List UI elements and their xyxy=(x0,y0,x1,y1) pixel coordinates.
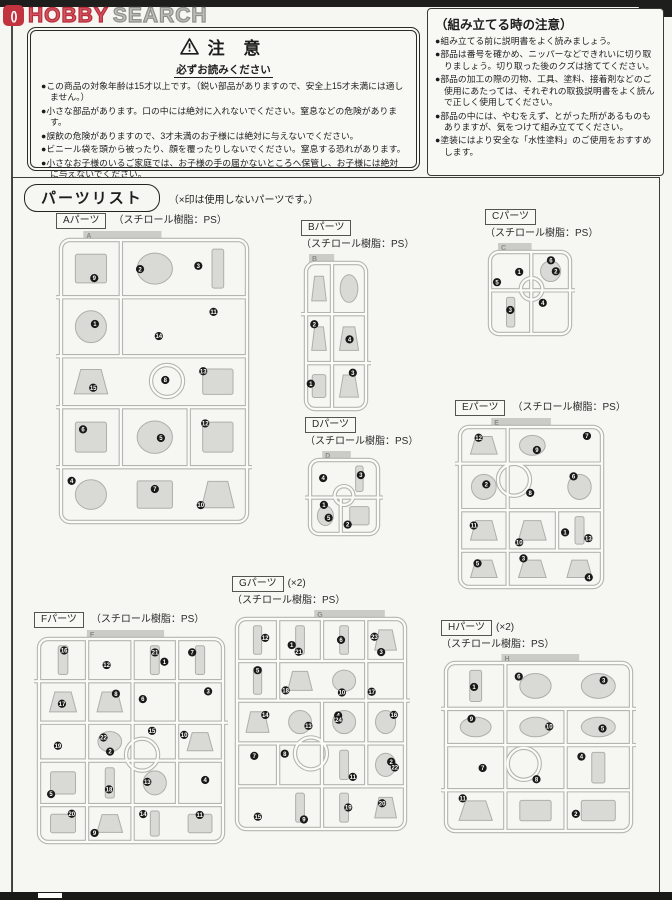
caution-box: 注 意 必ずお読みください ●この商品の対象年齢は15才以上です。（鋭い部品があ… xyxy=(27,27,420,171)
svg-text:14: 14 xyxy=(155,334,162,340)
assembly-bullet: ●組み立てる前に説明書をよく読みましょう。 xyxy=(435,36,656,47)
svg-text:10: 10 xyxy=(181,733,188,739)
svg-text:21: 21 xyxy=(295,650,302,656)
sprue-block-h: Hパーツ(×2)（スチロール樹脂：PS） H1234567891011 xyxy=(441,620,636,836)
sprue-e-diagram: E12345678910111213 xyxy=(455,418,607,592)
svg-text:20: 20 xyxy=(68,812,75,818)
sprue-h-diagram: H1234567891011 xyxy=(441,654,636,836)
sprue-f-material: （スチロール樹脂：PS） xyxy=(91,614,204,625)
sprue-e-name: Eパーツ xyxy=(455,400,505,416)
hobby-search-logo-icon: () xyxy=(3,5,24,26)
svg-text:16: 16 xyxy=(61,649,68,655)
caution-bullet: ●誤飲の危険がありますので、3才未満のお子様には絶対に与えないでください。 xyxy=(41,131,406,142)
svg-text:19: 19 xyxy=(55,744,62,750)
caution-subtitle: 必ずお読みください xyxy=(174,64,273,78)
sprue-a-name: Aパーツ xyxy=(56,213,106,229)
svg-text:15: 15 xyxy=(254,815,261,821)
assembly-bullet: ●部品の加工の際の刃物、工具、塗料、接着剤などのご使用にあたっては、それぞれの取… xyxy=(435,74,656,108)
sprue-a-diagram: A123456789101112131415 xyxy=(56,231,252,527)
assembly-bullet: ●部品の中には、やむをえず、とがった所があるものもありますが、気をつけて組み立て… xyxy=(435,111,656,134)
sprue-g-name: Gパーツ xyxy=(232,576,284,592)
svg-text:24: 24 xyxy=(335,718,342,724)
svg-text:23: 23 xyxy=(371,635,378,641)
sprue-h-qty: (×2) xyxy=(496,622,514,633)
sprue-b-diagram: B1234 xyxy=(301,254,371,414)
svg-text:11: 11 xyxy=(350,775,357,781)
svg-text:22: 22 xyxy=(391,766,398,772)
svg-text:12: 12 xyxy=(103,663,110,669)
sprue-g-diagram: G123456789101112131415161718192021222324 xyxy=(232,610,410,834)
svg-text:15: 15 xyxy=(90,386,97,392)
sprue-block-e: Eパーツ（スチロール樹脂：PS） E12345678910111213 xyxy=(455,400,626,592)
svg-text:14: 14 xyxy=(262,713,269,719)
sprue-b-material: （スチロール樹脂：PS） xyxy=(301,238,414,252)
svg-text:19: 19 xyxy=(345,806,352,812)
sprue-c-material: （スチロール樹脂：PS） xyxy=(485,227,598,241)
svg-text:10: 10 xyxy=(197,503,204,509)
svg-text:11: 11 xyxy=(210,310,217,316)
svg-text:10: 10 xyxy=(339,691,346,697)
caution-bullet: ●この商品の対象年齢は15才以上です。（鋭い部品がありますので、安全上15才未満… xyxy=(41,81,406,104)
sprue-b-name: Bパーツ xyxy=(301,220,351,236)
sprue-d-diagram: D12345 xyxy=(305,451,383,539)
sprue-g-qty: (×2) xyxy=(288,578,306,589)
svg-text:15: 15 xyxy=(149,729,156,735)
sprue-h-name: Hパーツ xyxy=(441,620,492,636)
sprue-f-name: Fパーツ xyxy=(34,612,84,628)
sprue-d-material: （スチロール樹脂：PS） xyxy=(305,435,418,449)
svg-text:12: 12 xyxy=(262,636,269,642)
svg-text:14: 14 xyxy=(140,812,147,818)
watermark-word-search: SEARCH xyxy=(113,5,208,26)
svg-text:11: 11 xyxy=(460,796,467,802)
sprue-c-diagram: C123456 xyxy=(485,243,575,339)
assembly-notes-title: （組み立てる時の注意） xyxy=(435,14,656,33)
sprue-e-material: （スチロール樹脂：PS） xyxy=(512,402,625,413)
svg-text:17: 17 xyxy=(59,702,66,708)
sprue-block-b: Bパーツ（スチロール樹脂：PS） B1234 xyxy=(301,220,414,414)
svg-text:13: 13 xyxy=(585,536,592,542)
svg-text:18: 18 xyxy=(106,787,113,793)
sprue-block-a: Aパーツ（スチロール樹脂：PS） A123456789101112131415 xyxy=(56,213,252,527)
hobby-search-watermark: () HOBBY SEARCH xyxy=(3,5,208,26)
sprue-g-material: （スチロール樹脂：PS） xyxy=(232,594,410,608)
svg-text:13: 13 xyxy=(305,724,312,730)
svg-text:12: 12 xyxy=(475,436,482,442)
watermark-word-hobby: HOBBY xyxy=(28,5,109,26)
instruction-manual-page: () HOBBY SEARCH 注 意 必ずお読みください ●この商品の対象年齢… xyxy=(0,0,672,900)
sprue-c-name: Cパーツ xyxy=(485,209,536,225)
sprue-h-material: （スチロール樹脂：PS） xyxy=(441,638,636,652)
svg-text:17: 17 xyxy=(368,690,375,696)
warning-icon xyxy=(180,38,199,55)
caution-title-text: 注 意 xyxy=(208,34,268,59)
sprue-block-f: Fパーツ（スチロール樹脂：PS） F1234567891011121314151… xyxy=(34,612,228,847)
svg-text:18: 18 xyxy=(282,688,289,694)
svg-text:13: 13 xyxy=(144,780,151,786)
caution-bullet: ●ビニール袋を頭から被ったり、顔を覆ったりしないでください。窒息する恐れがありま… xyxy=(41,144,406,155)
svg-text:10: 10 xyxy=(516,540,523,546)
parts-list-title: パーツリスト xyxy=(24,184,160,212)
sprue-d-name: Dパーツ xyxy=(305,417,356,433)
caution-title: 注 意 xyxy=(41,34,406,59)
svg-text:11: 11 xyxy=(197,813,204,819)
svg-text:21: 21 xyxy=(152,651,159,657)
scan-bottom-bar xyxy=(0,892,672,900)
sprue-f-diagram: F12345678910111213141516171819202122 xyxy=(34,630,228,847)
sprue-block-c: Cパーツ（スチロール樹脂：PS） C123456 xyxy=(485,209,598,339)
sprue-a-material: （スチロール樹脂：PS） xyxy=(113,215,226,226)
svg-text:10: 10 xyxy=(546,725,553,731)
svg-text:20: 20 xyxy=(379,801,386,807)
parts-list-note: （×印は使用しないパーツです。） xyxy=(169,191,319,206)
assembly-notes-box: （組み立てる時の注意） ●組み立てる前に説明書をよく読みましょう。 ●部品は番号… xyxy=(427,8,664,176)
scan-bottom-notch xyxy=(38,893,62,898)
sprue-block-g: Gパーツ(×2)（スチロール樹脂：PS） G123456789101112131… xyxy=(232,576,410,834)
svg-text:12: 12 xyxy=(202,422,209,428)
sprue-block-d: Dパーツ（スチロール樹脂：PS） D12345 xyxy=(305,417,418,539)
assembly-bullet: ●塗装にはより安全な「水性塗料」のご使用をおすすめします。 xyxy=(435,135,656,158)
assembly-bullet: ●部品は番号を確かめ、ニッパーなどできれいに切り取りましょう。切り取った後のクズ… xyxy=(435,49,656,72)
svg-text:22: 22 xyxy=(100,736,107,742)
svg-text:13: 13 xyxy=(200,369,207,375)
caution-bullet: ●小さな部品があります。口の中には絶対に入れないでください。窒息などの危険があり… xyxy=(41,106,406,129)
svg-text:11: 11 xyxy=(471,524,478,530)
svg-text:16: 16 xyxy=(390,713,397,719)
